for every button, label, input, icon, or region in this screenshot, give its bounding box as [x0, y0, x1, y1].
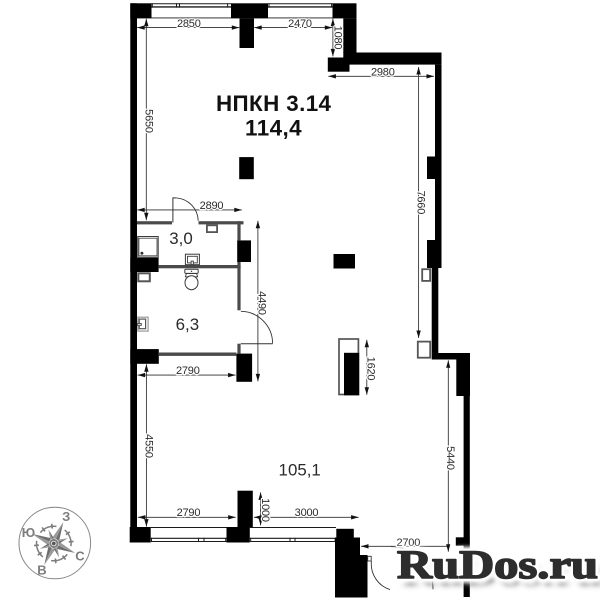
svg-text:2850: 2850 [177, 18, 201, 30]
svg-text:2790: 2790 [177, 507, 201, 519]
svg-text:3000: 3000 [295, 507, 319, 519]
svg-text:2790: 2790 [176, 365, 200, 377]
svg-text:5650: 5650 [143, 109, 155, 133]
svg-text:7660: 7660 [414, 190, 426, 214]
svg-text:2470: 2470 [288, 18, 312, 30]
svg-text:Ю: Ю [22, 525, 35, 540]
svg-text:114,4: 114,4 [245, 116, 302, 141]
svg-text:НПКН 3.14: НПКН 3.14 [216, 91, 332, 116]
svg-text:RuDos.ru: RuDos.ru [397, 542, 598, 587]
svg-text:3,0: 3,0 [169, 229, 192, 248]
svg-text:1000: 1000 [259, 498, 271, 522]
svg-text:4550: 4550 [142, 434, 154, 458]
svg-text:1620: 1620 [365, 357, 377, 381]
svg-text:105,1: 105,1 [279, 461, 321, 480]
svg-text:З: З [62, 509, 70, 524]
svg-text:4490: 4490 [256, 291, 268, 315]
svg-text:1080: 1080 [331, 26, 343, 50]
svg-text:2890: 2890 [200, 200, 224, 212]
svg-text:6,3: 6,3 [176, 315, 199, 334]
svg-text:С: С [75, 549, 85, 564]
svg-text:2980: 2980 [371, 66, 395, 78]
svg-text:5440: 5440 [444, 446, 456, 470]
svg-text:В: В [37, 563, 46, 578]
